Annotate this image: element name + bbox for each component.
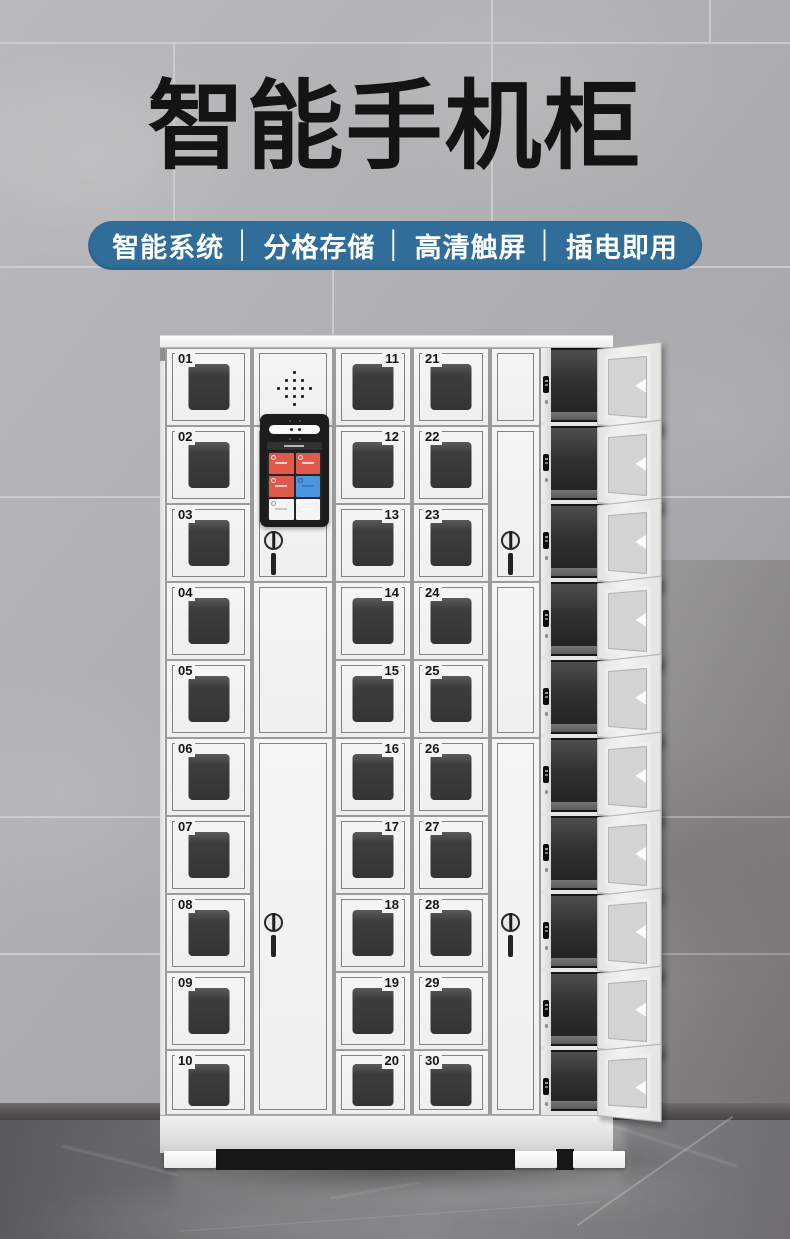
door-window [353, 910, 394, 956]
screen-tile [296, 453, 321, 474]
locker-door-face: 01 [167, 349, 250, 425]
locker-door: 24 [412, 582, 490, 660]
locker-door-face: 26 [414, 739, 488, 815]
door-window [353, 676, 394, 722]
latch-lock-icon [543, 1078, 549, 1095]
door-number-label: 18 [382, 898, 402, 913]
locker-door-face: 30 [414, 1051, 488, 1114]
control-column [252, 348, 334, 1115]
locker-door: 22 [412, 426, 490, 504]
locker-door-face: 21 [414, 349, 488, 425]
door-number-label: 19 [382, 976, 402, 991]
locker-door: 13 [334, 504, 412, 582]
door-window [353, 598, 394, 644]
open-door [597, 420, 662, 511]
touchscreen [267, 442, 322, 520]
door-window [353, 988, 394, 1034]
screw-icon [545, 1102, 549, 1106]
screw-icon [545, 634, 549, 638]
panel-dot [299, 420, 301, 422]
door-highlight-icon [635, 613, 646, 627]
kick-recess [216, 1149, 515, 1170]
side-panel [490, 348, 541, 426]
locker-door-face: 23 [414, 505, 488, 581]
base-band [160, 1115, 613, 1153]
speaker-holes-icon [293, 387, 296, 390]
service-door-lower [252, 738, 334, 1115]
door-number-label: 10 [175, 1054, 195, 1069]
tile-grout-line [709, 0, 711, 42]
locker-door-face: 09 [167, 973, 250, 1049]
screen-tile [269, 453, 294, 474]
latch-lock-icon [543, 766, 549, 783]
screen-tile [296, 499, 321, 520]
open-compartment [541, 1050, 613, 1115]
compartment-frame [541, 894, 551, 968]
open-compartment [541, 738, 613, 816]
feature-separator: │ [375, 229, 414, 260]
screw-icon [545, 1024, 549, 1028]
compartment-frame [541, 582, 551, 656]
screw-icon [545, 556, 549, 560]
locker-door: 10 [165, 1050, 252, 1115]
locker-door-face: 07 [167, 817, 250, 893]
door-number-label: 15 [382, 664, 402, 679]
door-window [353, 1064, 394, 1106]
door-window [431, 520, 472, 566]
latch-lock-icon [543, 844, 549, 861]
latch-lock-icon [543, 376, 549, 393]
feature-item: 插电即用 [566, 226, 678, 265]
open-compartment [541, 504, 613, 582]
door-window [188, 676, 229, 722]
open-compartment [541, 426, 613, 504]
locker-door-face: 03 [167, 505, 250, 581]
door-number-label: 05 [175, 664, 195, 679]
locker-door-face: 17 [336, 817, 410, 893]
door-window [188, 910, 229, 956]
locker-door-face: 14 [336, 583, 410, 659]
open-door [597, 1043, 662, 1122]
locker-door-face: 13 [336, 505, 410, 581]
compartment-frame [541, 738, 551, 812]
product-poster: 智能手机柜 智能系统 │ 分格存储 │ 高清触屏 │ 插电即用 01 [0, 0, 790, 1239]
side-door-upper [490, 426, 541, 582]
open-door [597, 966, 662, 1057]
door-window [353, 754, 394, 800]
screw-icon [545, 790, 549, 794]
locker-door-face: 04 [167, 583, 250, 659]
door-number-label: 27 [422, 820, 442, 835]
compartment-frame [541, 504, 551, 578]
locker-door: 03 [165, 504, 252, 582]
open-door [597, 654, 662, 745]
key-icon [508, 935, 513, 957]
locker-door-face: 06 [167, 739, 250, 815]
screw-icon [545, 868, 549, 872]
locker-door-face: 24 [414, 583, 488, 659]
door-window [431, 988, 472, 1034]
locker-door-face: 16 [336, 739, 410, 815]
panel-dot [289, 438, 291, 440]
screen-tile [269, 499, 294, 520]
key-icon [271, 553, 276, 575]
locker-door-face: 15 [336, 661, 410, 737]
locker-door-face: 02 [167, 427, 250, 503]
door-number-label: 11 [382, 352, 402, 367]
locker-door-face: 08 [167, 895, 250, 971]
door-number-label: 02 [175, 430, 195, 445]
locker-door: 07 [165, 816, 252, 894]
door-number-label: 24 [422, 586, 442, 601]
compartment-frame [541, 426, 551, 500]
door-highlight-icon [635, 925, 646, 939]
locker-door-face: 10 [167, 1051, 250, 1114]
door-window [431, 676, 472, 722]
latch-lock-icon [543, 610, 549, 627]
door-number-label: 07 [175, 820, 195, 835]
kick-recess [556, 1149, 574, 1170]
locker-door: 12 [334, 426, 412, 504]
door-window [188, 598, 229, 644]
open-compartment [541, 816, 613, 894]
locker-door: 04 [165, 582, 252, 660]
terminal-section [252, 426, 334, 582]
compartment-frame [541, 348, 551, 422]
cabinet-base [160, 1115, 613, 1175]
locker-door-face: 28 [414, 895, 488, 971]
locker-door-face: 25 [414, 661, 488, 737]
cabinet-body: 01 02 03 [160, 348, 613, 1115]
door-window [431, 442, 472, 488]
locker-door-face: 27 [414, 817, 488, 893]
screen-tile [296, 476, 321, 497]
door-highlight-icon [635, 535, 646, 549]
door-window [431, 910, 472, 956]
door-number-label: 03 [175, 508, 195, 523]
door-number-label: 14 [382, 586, 402, 601]
door-window [188, 754, 229, 800]
screw-icon [545, 478, 549, 482]
door-window [353, 442, 394, 488]
camera-scanner-bar [269, 425, 320, 434]
open-compartment [541, 582, 613, 660]
locker-door: 15 [334, 660, 412, 738]
door-highlight-icon [635, 769, 646, 783]
panel-dot [289, 420, 291, 422]
screen-tile-grid [267, 451, 322, 520]
locker-door: 02 [165, 426, 252, 504]
locker-door: 09 [165, 972, 252, 1050]
key-icon [271, 935, 276, 957]
locker-door-face: 29 [414, 973, 488, 1049]
door-number-label: 20 [382, 1054, 402, 1069]
door-number-label: 23 [422, 508, 442, 523]
locker-door: 17 [334, 816, 412, 894]
cabinet-foot-left [164, 1151, 216, 1168]
cabinet-foot-middle [515, 1151, 557, 1168]
cabinet-top-edge [160, 335, 613, 348]
door-number-label: 30 [422, 1054, 442, 1069]
door-window [431, 832, 472, 878]
door-number-label: 16 [382, 742, 402, 757]
feature-banner: 智能系统 │ 分格存储 │ 高清触屏 │ 插电即用 [88, 221, 702, 270]
feature-separator: │ [527, 229, 566, 260]
door-number-label: 22 [422, 430, 442, 445]
compartment-frame [541, 1050, 551, 1111]
locker-door-face: 11 [336, 349, 410, 425]
door-number-label: 25 [422, 664, 442, 679]
locker-door: 30 [412, 1050, 490, 1115]
door-window [431, 1064, 472, 1106]
feature-separator: │ [224, 229, 263, 260]
open-door [597, 732, 662, 823]
door-window [431, 754, 472, 800]
locker-door: 14 [334, 582, 412, 660]
cabinet-foot-right [573, 1151, 625, 1168]
feature-item: 高清触屏 [415, 226, 527, 265]
door-number-label: 06 [175, 742, 195, 757]
locker-column-21-30: 21 22 23 [412, 348, 490, 1115]
locker-door: 05 [165, 660, 252, 738]
locker-door-face: 05 [167, 661, 250, 737]
locker-door-face: 12 [336, 427, 410, 503]
door-highlight-icon [635, 691, 646, 705]
latch-lock-icon [543, 922, 549, 939]
screw-icon [545, 712, 549, 716]
open-door [597, 498, 662, 589]
door-number-label: 08 [175, 898, 195, 913]
locker-door: 28 [412, 894, 490, 972]
locker-door: 26 [412, 738, 490, 816]
door-window [188, 832, 229, 878]
door-number-label: 01 [175, 352, 195, 367]
open-compartment [541, 348, 613, 426]
locker-door: 08 [165, 894, 252, 972]
locker-door: 18 [334, 894, 412, 972]
door-window [353, 364, 394, 410]
door-window [188, 364, 229, 410]
locker-door-face: 20 [336, 1051, 410, 1114]
compartment-frame [541, 972, 551, 1046]
side-door-middle [490, 582, 541, 738]
door-highlight-icon [635, 847, 646, 861]
locker-column-11-20: 11 12 13 [334, 348, 412, 1115]
open-compartment [541, 894, 613, 972]
open-compartment [541, 660, 613, 738]
locker-door: 27 [412, 816, 490, 894]
locker-door: 11 [334, 348, 412, 426]
open-compartments-column [541, 348, 613, 1115]
door-number-label: 12 [382, 430, 402, 445]
open-door [597, 342, 662, 433]
door-highlight-icon [635, 1003, 646, 1017]
screen-tile [269, 476, 294, 497]
door-number-label: 09 [175, 976, 195, 991]
door-number-label: 17 [382, 820, 402, 835]
door-number-label: 28 [422, 898, 442, 913]
door-window [431, 364, 472, 410]
door-window [188, 988, 229, 1034]
tile-grout-line [0, 42, 790, 44]
locker-door-face: 22 [414, 427, 488, 503]
locker-door: 06 [165, 738, 252, 816]
locker-door-face: 18 [336, 895, 410, 971]
open-door [597, 576, 662, 667]
compartment-frame [541, 660, 551, 734]
locker-door: 29 [412, 972, 490, 1050]
door-highlight-icon [635, 457, 646, 471]
door-window [188, 442, 229, 488]
locker-door-face: 19 [336, 973, 410, 1049]
door-number-label: 13 [382, 508, 402, 523]
door-highlight-icon [635, 379, 646, 393]
screen-header-bar [267, 442, 322, 451]
feature-item: 智能系统 [112, 226, 224, 265]
open-door [597, 810, 662, 901]
door-window [188, 1064, 229, 1106]
compartment-frame [541, 816, 551, 890]
keyhole-lock-icon [264, 531, 283, 550]
locker-door: 20 [334, 1050, 412, 1115]
keyhole-lock-icon [264, 913, 283, 932]
side-door-lower [490, 738, 541, 1115]
product-title: 智能手机柜 [0, 78, 790, 175]
door-highlight-icon [635, 1081, 646, 1095]
screw-icon [545, 400, 549, 404]
panel-dot [299, 438, 301, 440]
door-number-label: 04 [175, 586, 195, 601]
screw-icon [545, 946, 549, 950]
door-number-label: 29 [422, 976, 442, 991]
door-window [431, 598, 472, 644]
locker-door: 23 [412, 504, 490, 582]
door-window [188, 520, 229, 566]
latch-lock-icon [543, 532, 549, 549]
locker-door: 16 [334, 738, 412, 816]
latch-lock-icon [543, 688, 549, 705]
locker-door: 01 [165, 348, 252, 426]
locker-door: 21 [412, 348, 490, 426]
open-door [597, 888, 662, 979]
keyhole-lock-icon [501, 531, 520, 550]
keyhole-lock-icon [501, 913, 520, 932]
door-window [353, 832, 394, 878]
side-service-column [490, 348, 541, 1115]
locker-door: 19 [334, 972, 412, 1050]
key-icon [508, 553, 513, 575]
locker-column-01-10: 01 02 03 [165, 348, 252, 1115]
door-window [353, 520, 394, 566]
latch-lock-icon [543, 1000, 549, 1017]
door-number-label: 21 [422, 352, 442, 367]
smart-phone-locker-cabinet: 01 02 03 [160, 335, 613, 1180]
locker-door: 25 [412, 660, 490, 738]
feature-item: 分格存储 [263, 226, 375, 265]
service-door-upper [252, 582, 334, 738]
open-compartment [541, 972, 613, 1050]
touchscreen-panel [260, 414, 329, 527]
latch-lock-icon [543, 454, 549, 471]
door-number-label: 26 [422, 742, 442, 757]
